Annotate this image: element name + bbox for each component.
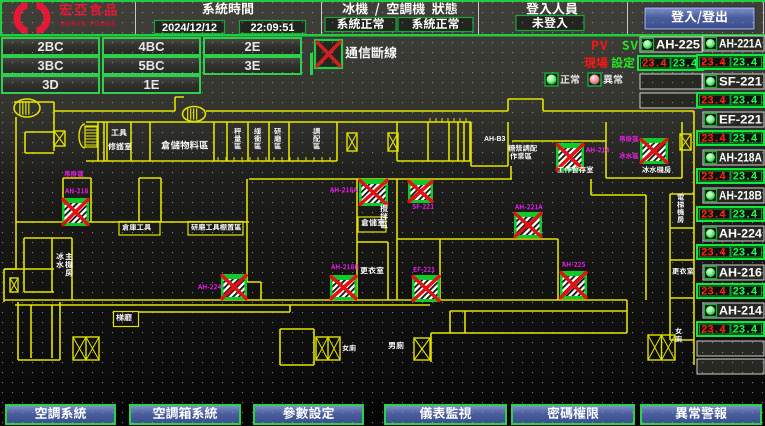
svg-text:23.4: 23.4 [701,325,726,337]
svg-text:AH-216: AH-216 [719,268,762,280]
svg-text:23.4: 23.4 [701,287,726,299]
svg-text:23.4: 23.4 [701,96,726,108]
svg-text:AH-218A: AH-218A [719,153,762,165]
svg-text:AH-224: AH-224 [719,229,763,241]
svg-text:23.4: 23.4 [733,248,758,260]
svg-text:2024/12/12: 2024/12/12 [162,22,217,34]
svg-text:1E: 1E [144,77,160,92]
svg-text:23.4: 23.4 [673,59,698,71]
svg-text:EF-221: EF-221 [719,115,763,127]
svg-text:3E: 3E [245,58,261,73]
svg-text:23.4: 23.4 [701,134,726,146]
svg-text:5BC: 5BC [138,58,165,73]
svg-text:23.4: 23.4 [733,134,758,146]
svg-text:23.4: 23.4 [642,59,667,71]
svg-text:AH-225: AH-225 [656,40,701,52]
svg-text:SF-221: SF-221 [719,77,763,89]
svg-text:3D: 3D [42,77,59,92]
svg-text:23.4: 23.4 [733,287,758,299]
svg-text:2E: 2E [245,39,261,54]
svg-text:23.4: 23.4 [701,210,726,222]
svg-text:23.4: 23.4 [701,58,726,70]
svg-text:23.4: 23.4 [701,248,726,260]
svg-text:23.4: 23.4 [701,172,726,184]
svg-text:23.4: 23.4 [733,58,758,70]
svg-text:23.4: 23.4 [733,172,758,184]
svg-text:AH-221A: AH-221A [719,39,762,51]
svg-text:23.4: 23.4 [733,325,758,337]
svg-text:AH-214: AH-214 [719,306,763,318]
svg-text:23.4: 23.4 [733,96,758,108]
svg-text:23.4: 23.4 [733,210,758,222]
svg-text:2BC: 2BC [37,39,64,54]
svg-text:AH-218B: AH-218B [719,191,762,203]
svg-text:4BC: 4BC [138,39,165,54]
svg-text:3BC: 3BC [37,58,64,73]
svg-text:AH-B3: AH-B3 [484,136,505,143]
svg-text:22:09:51: 22:09:51 [250,22,294,34]
